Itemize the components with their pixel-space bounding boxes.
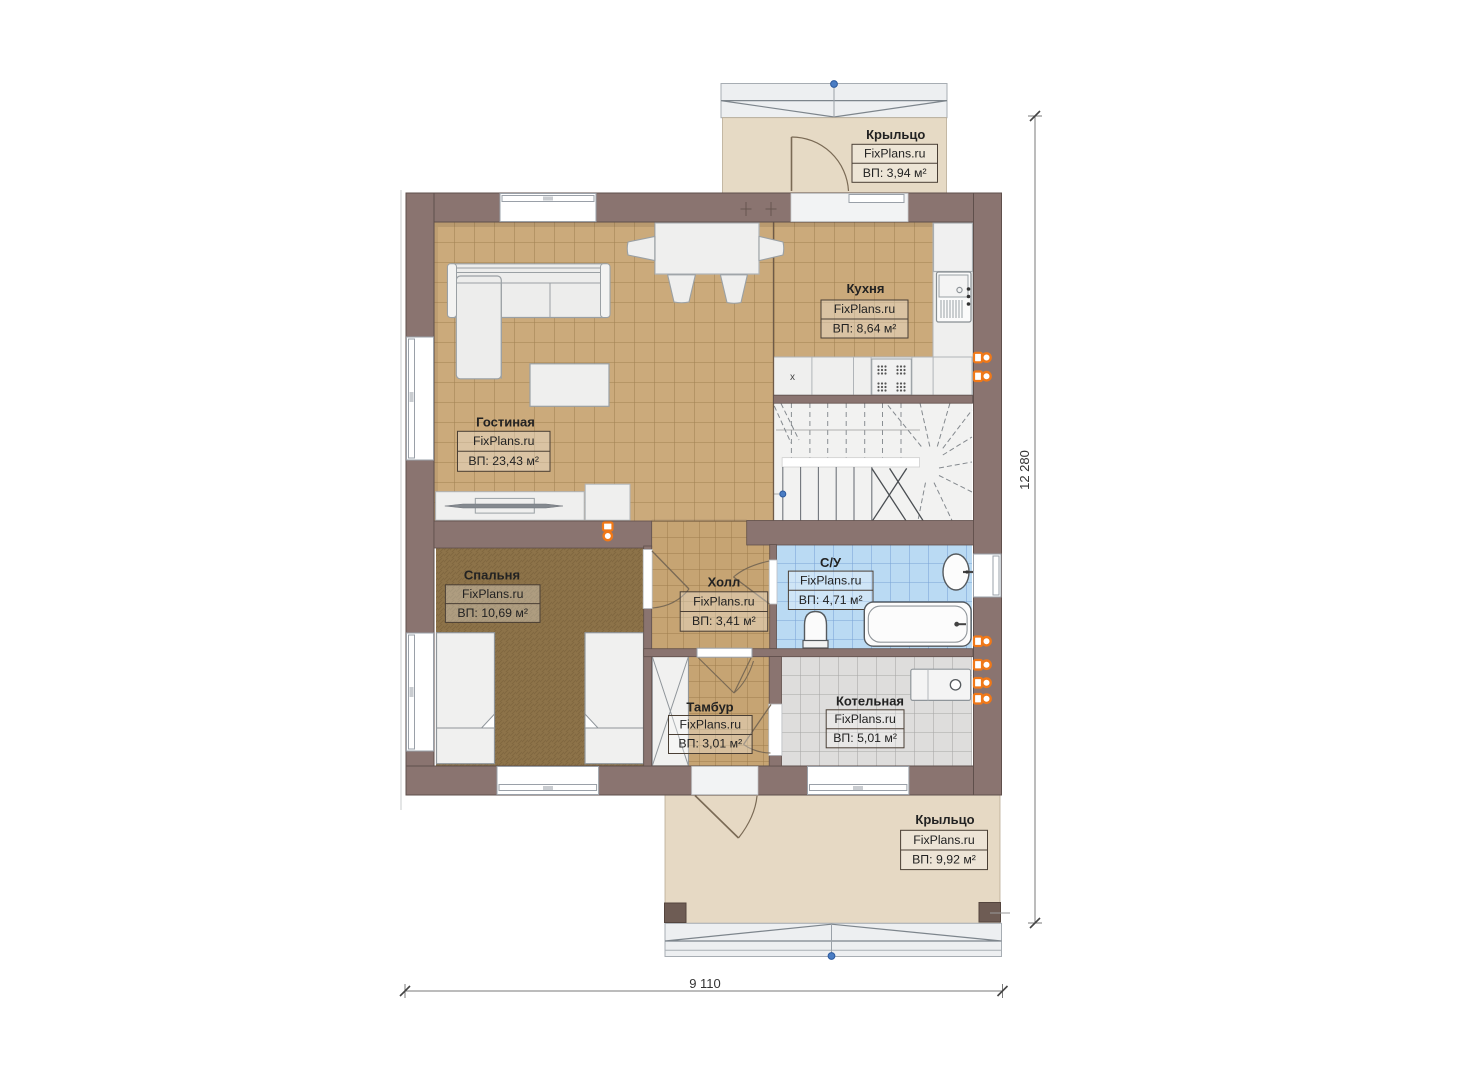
svg-text:FixPlans.ru: FixPlans.ru xyxy=(693,595,755,609)
svg-text:Холл: Холл xyxy=(708,575,741,590)
svg-text:Тамбур: Тамбур xyxy=(686,699,733,714)
svg-text:FixPlans.ru: FixPlans.ru xyxy=(864,147,926,161)
svg-text:FixPlans.ru: FixPlans.ru xyxy=(834,712,896,726)
svg-text:ВП: 3,94 м²: ВП: 3,94 м² xyxy=(863,166,927,180)
svg-text:ВП: 8,64 м²: ВП: 8,64 м² xyxy=(833,322,897,336)
svg-text:FixPlans.ru: FixPlans.ru xyxy=(834,302,896,316)
svg-text:12 280: 12 280 xyxy=(1017,450,1032,490)
svg-text:Крыльцо: Крыльцо xyxy=(915,812,974,827)
svg-text:FixPlans.ru: FixPlans.ru xyxy=(680,718,742,732)
svg-text:9 110: 9 110 xyxy=(689,976,721,991)
svg-text:FixPlans.ru: FixPlans.ru xyxy=(473,434,535,448)
svg-text:С/У: С/У xyxy=(820,555,842,570)
svg-text:Кухня: Кухня xyxy=(847,281,885,296)
svg-text:Крыльцо: Крыльцо xyxy=(866,127,925,142)
svg-text:ВП: 3,01 м²: ВП: 3,01 м² xyxy=(678,737,742,751)
svg-text:ВП: 9,92 м²: ВП: 9,92 м² xyxy=(912,853,976,867)
svg-text:Спальня: Спальня xyxy=(464,568,520,583)
svg-text:Гостиная: Гостиная xyxy=(476,415,535,430)
svg-text:FixPlans.ru: FixPlans.ru xyxy=(462,587,524,601)
svg-text:ВП: 3,41 м²: ВП: 3,41 м² xyxy=(692,614,756,628)
svg-text:x: x xyxy=(790,372,795,383)
svg-text:Котельная: Котельная xyxy=(836,694,904,709)
svg-text:ВП: 5,01 м²: ВП: 5,01 м² xyxy=(833,731,897,745)
svg-text:ВП: 10,69 м²: ВП: 10,69 м² xyxy=(457,606,528,620)
svg-text:ВП: 4,71 м²: ВП: 4,71 м² xyxy=(799,593,863,607)
svg-text:FixPlans.ru: FixPlans.ru xyxy=(913,833,975,847)
svg-text:FixPlans.ru: FixPlans.ru xyxy=(800,574,862,588)
svg-text:ВП: 23,43 м²: ВП: 23,43 м² xyxy=(468,454,539,468)
